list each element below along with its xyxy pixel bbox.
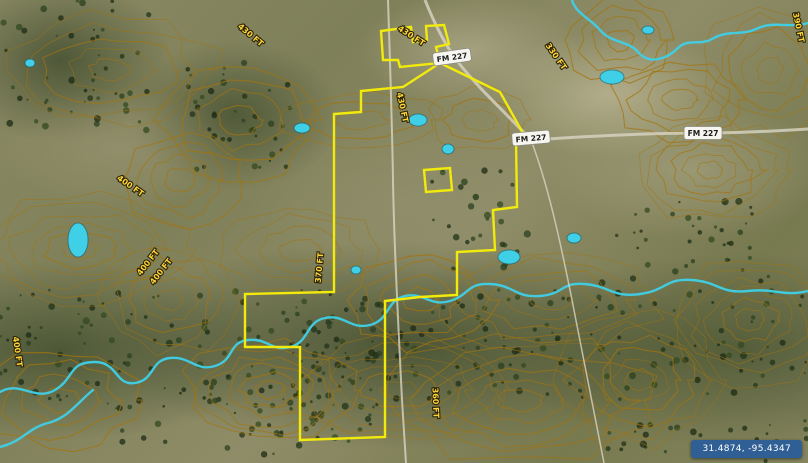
map-overlay: 430 FT430 FT430 FT400 FT400 FT400 FT370 … (0, 0, 808, 463)
elevation-label: 430 FT (395, 92, 410, 124)
pond (498, 250, 520, 264)
elevation-label: 330 FT (544, 42, 569, 73)
pond (68, 223, 88, 257)
pond (25, 59, 35, 67)
map-canvas[interactable]: 430 FT430 FT430 FT400 FT400 FT400 FT370 … (0, 0, 808, 463)
pond (567, 233, 581, 243)
road-label-badge: FM 227 (512, 130, 551, 146)
pond (600, 70, 624, 84)
pond (642, 26, 654, 34)
road-label-text: FM 227 (688, 129, 719, 138)
pond (294, 123, 310, 133)
road-label-badge: FM 227 (432, 48, 471, 66)
elevation-label: 390 FT (791, 12, 806, 44)
boundary-main-parcel (245, 63, 524, 440)
elevation-label: 400 FT (115, 174, 146, 199)
road (531, 140, 604, 463)
stream (0, 280, 808, 394)
pond (442, 144, 454, 154)
elevation-label: 370 FT (314, 252, 326, 284)
elevation-label: 400 FT (11, 336, 24, 368)
coordinates-badge: 31.4874, -95.4347 (691, 440, 802, 458)
contour-lines (0, 0, 808, 460)
elevation-label: 360 FT (430, 388, 440, 419)
boundary-outparcel (424, 168, 452, 192)
elevation-label: 430 FT (236, 22, 265, 49)
road-label-badge: FM 227 (684, 127, 722, 140)
pond (409, 114, 427, 126)
pond (351, 266, 361, 274)
road (388, 0, 406, 463)
